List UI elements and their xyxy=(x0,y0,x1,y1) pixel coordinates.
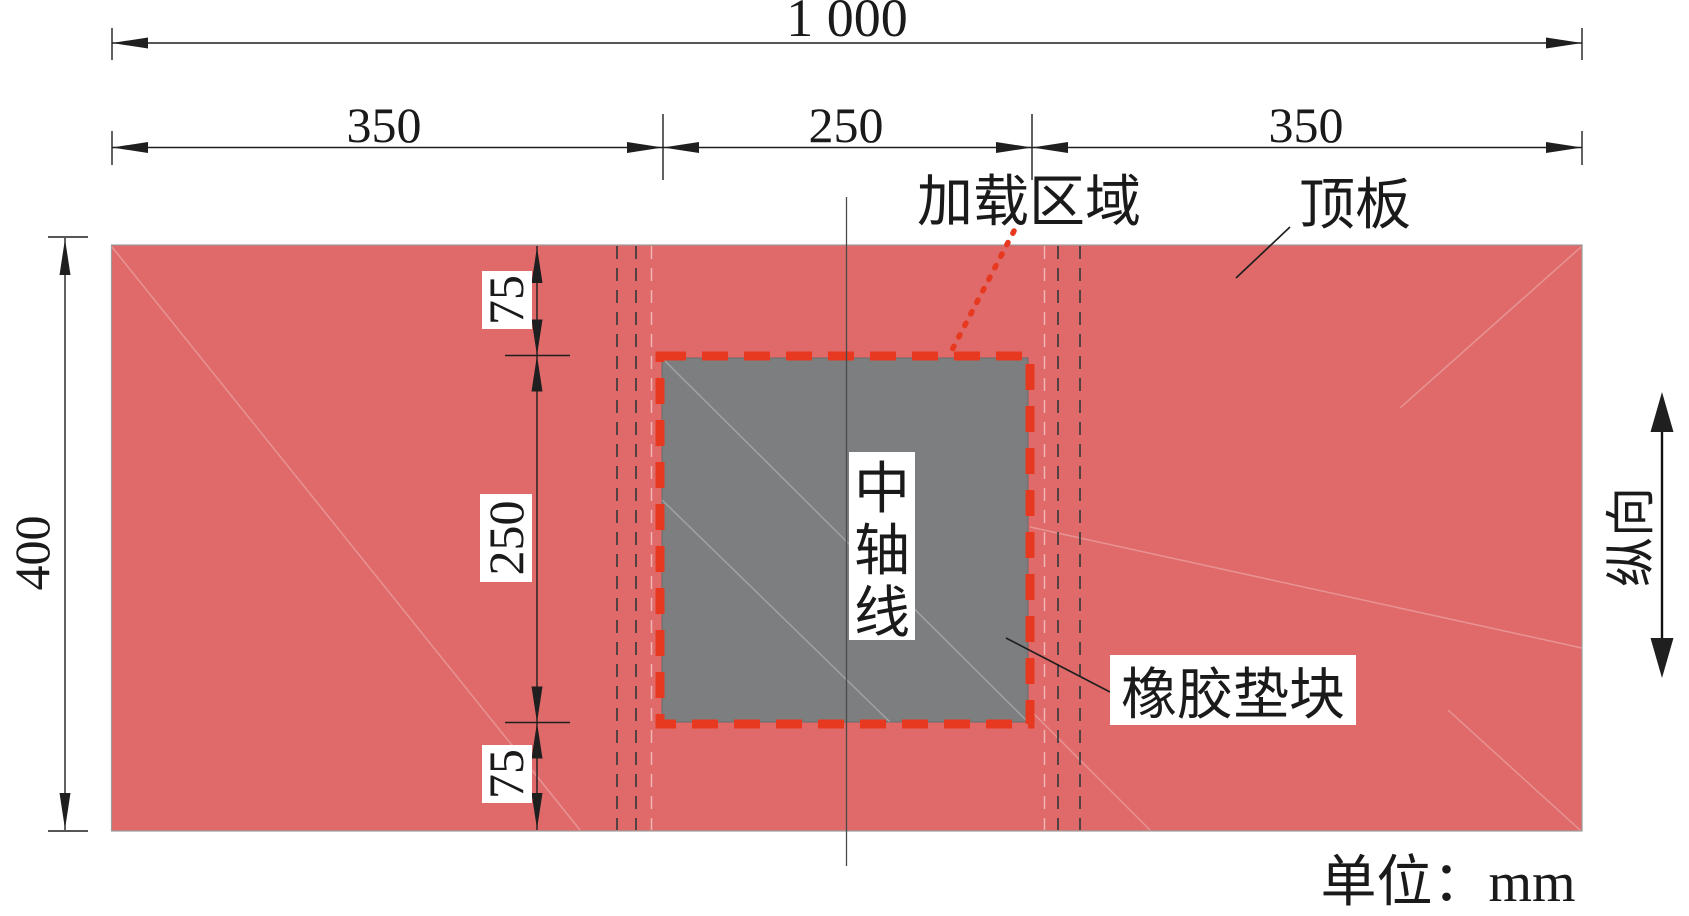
rubber-pad-label: 橡胶垫块 xyxy=(1121,665,1345,727)
dim-label-v-top: 75 xyxy=(478,275,534,325)
figure-canvas: 1 000 350 250 350 400 xyxy=(0,0,1689,916)
dim-segments: 350 250 350 xyxy=(112,97,1582,180)
annotation-center-axis: 中 轴 线 xyxy=(849,452,915,645)
dim-label-seg-left: 350 xyxy=(347,97,422,153)
unit-note: 单位：mm xyxy=(1320,852,1575,914)
dimension-drawing: 1 000 350 250 350 400 xyxy=(0,0,1689,916)
dim-total-width: 1 000 xyxy=(112,0,1582,60)
longitudinal-arrow-up xyxy=(1651,392,1674,432)
dim-label-v-bottom: 75 xyxy=(478,749,534,799)
annotation-longitudinal: 纵向 xyxy=(1603,392,1674,678)
center-axis-char-2: 轴 xyxy=(854,521,910,583)
longitudinal-label: 纵向 xyxy=(1603,487,1659,587)
dim-label-seg-right: 350 xyxy=(1269,97,1344,153)
top-plate-label: 顶板 xyxy=(1299,175,1411,237)
longitudinal-arrow-down xyxy=(1651,638,1674,678)
dim-label-seg-mid: 250 xyxy=(809,97,884,153)
dim-label-v-mid: 250 xyxy=(478,501,534,576)
dim-total-height: 400 xyxy=(4,237,88,831)
dim-label-total-width: 1 000 xyxy=(786,0,908,48)
dim-label-total-height: 400 xyxy=(4,516,60,591)
center-axis-char-1: 中 xyxy=(854,459,910,521)
center-axis-char-3: 线 xyxy=(854,583,910,645)
loading-area-label: 加载区域 xyxy=(917,172,1141,234)
